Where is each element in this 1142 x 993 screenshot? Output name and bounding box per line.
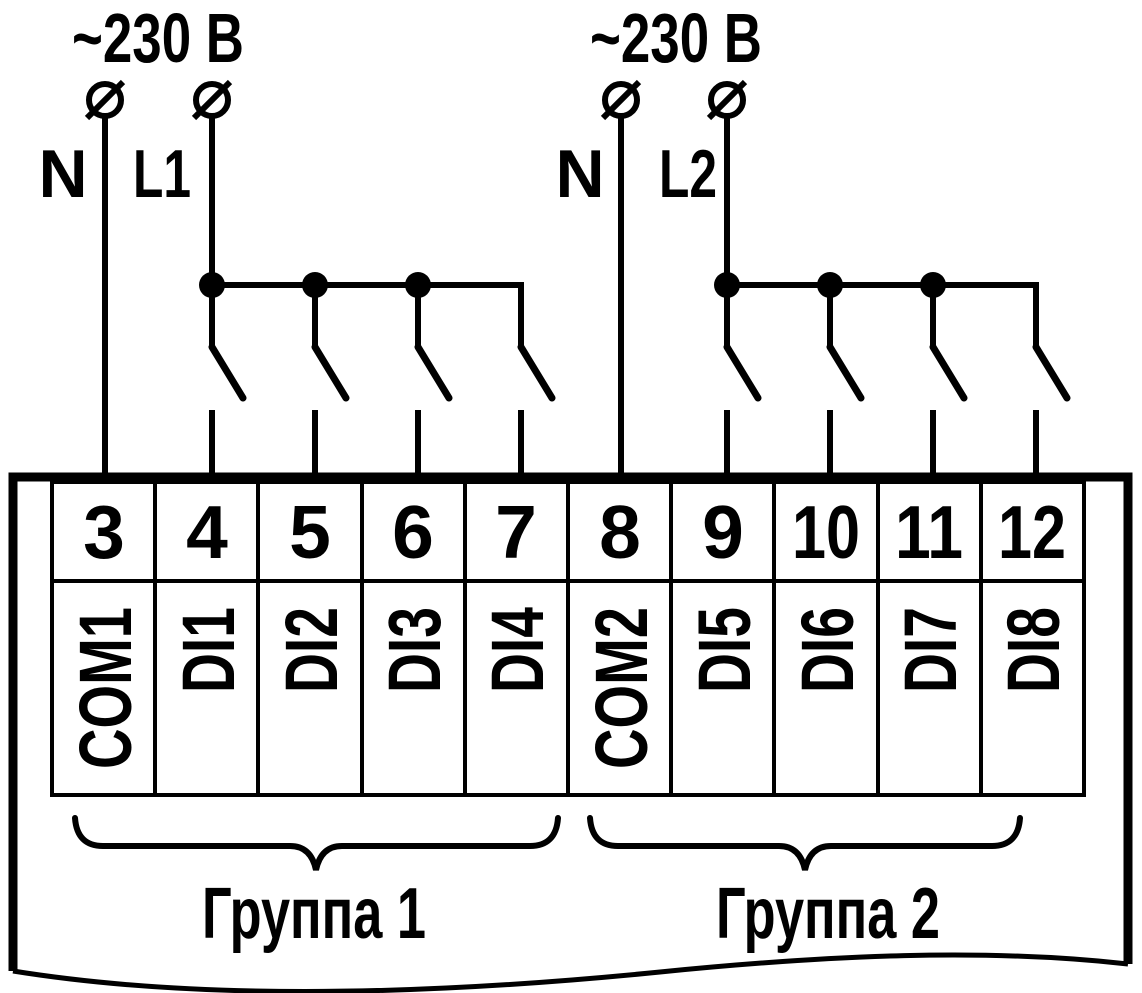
group-2-label: Группа 2: [716, 874, 940, 954]
switch-symbol-di1: [212, 285, 243, 482]
terminal-block: 3 4 5 6 7 8 9 10 11 12 COM1 DI1 DI2 DI3 …: [52, 482, 1084, 795]
switch-symbol-di5: [727, 285, 758, 482]
voltage-label-2: ~230 В: [590, 0, 762, 77]
terminal-number: 9: [702, 490, 744, 574]
bus-line-1: [212, 285, 521, 347]
power-terminal-icon-l1: [194, 82, 230, 118]
switch-blade: [727, 347, 758, 398]
brace-group-1: [75, 818, 558, 870]
switch-blade: [418, 347, 449, 398]
neutral-label-2: N: [555, 136, 604, 212]
line-label-1: L1: [133, 136, 191, 212]
terminal-label: COM2: [580, 607, 663, 769]
terminal-label: COM1: [64, 607, 147, 769]
terminal-number: 6: [392, 490, 434, 574]
switch-symbol-di2: [315, 285, 346, 482]
switch-symbol-di4: [521, 347, 552, 482]
neutral-label-1: N: [38, 136, 87, 212]
terminal-label: DI2: [270, 607, 353, 693]
switch-symbol-di8: [1036, 347, 1067, 482]
terminal-label: DI3: [373, 607, 456, 693]
power-terminal-icon-n1: [87, 82, 123, 118]
switch-blade: [830, 347, 861, 398]
terminal-label: DI7: [889, 607, 972, 693]
terminal-label: DI1: [167, 607, 250, 693]
terminal-number: 7: [495, 490, 537, 574]
terminal-number: 3: [83, 490, 125, 574]
voltage-label-1: ~230 В: [72, 0, 244, 77]
power-terminal-icon-l2: [709, 82, 745, 118]
switch-blade: [212, 347, 243, 398]
switch-blade: [1036, 347, 1067, 398]
group-1-label: Группа 1: [202, 874, 426, 954]
switch-symbol-di3: [418, 285, 449, 482]
terminal-label: DI8: [992, 607, 1075, 693]
terminal-number: 10: [792, 490, 860, 574]
switch-bank-group-2: [714, 272, 1067, 482]
terminal-number: 5: [289, 490, 331, 574]
switch-blade: [933, 347, 964, 398]
terminal-number: 11: [895, 490, 963, 574]
power-feed-group-2: ~230 В N L2: [555, 0, 762, 482]
line-label-2: L2: [659, 136, 717, 212]
terminal-number: 8: [599, 490, 641, 574]
switch-bank-group-1: [199, 272, 552, 482]
switch-blade: [521, 347, 552, 398]
terminal-label: DI5: [683, 607, 766, 693]
terminal-label: DI6: [786, 607, 869, 693]
device-torn-edge: [13, 955, 1128, 991]
input-group-1-annotation: Группа 1: [75, 818, 558, 954]
power-feed-group-1: ~230 В N L1: [38, 0, 244, 482]
power-terminal-icon-n2: [603, 82, 639, 118]
bus-line-2: [727, 285, 1036, 347]
switch-blade: [315, 347, 346, 398]
input-group-2-annotation: Группа 2: [590, 818, 1020, 954]
terminal-number: 12: [998, 490, 1066, 574]
switch-symbol-di6: [830, 285, 861, 482]
wiring-diagram-canvas: ~230 В N L1 ~230 В N L2: [0, 0, 1142, 993]
terminal-label: DI4: [476, 607, 559, 693]
wiring-diagram: ~230 В N L1 ~230 В N L2: [0, 0, 1142, 993]
brace-group-2: [590, 818, 1020, 870]
terminal-number: 4: [186, 490, 228, 574]
switch-symbol-di7: [933, 285, 964, 482]
